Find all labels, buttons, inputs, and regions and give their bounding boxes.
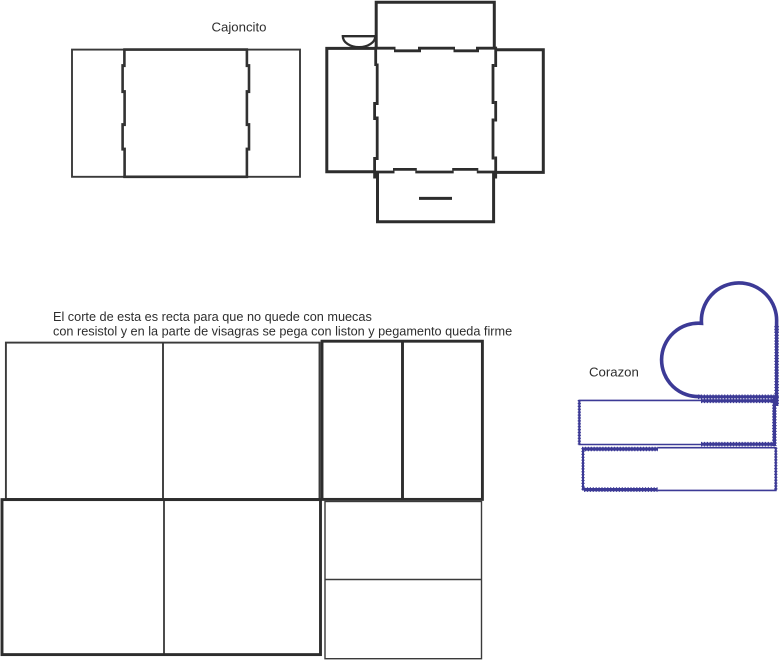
svg-text:con resistol y en la parte de: con resistol y en la parte de visagras s…: [53, 325, 512, 339]
svg-text:Corazon: Corazon: [589, 365, 639, 380]
svg-text:Cajoncito: Cajoncito: [212, 20, 267, 35]
svg-text:El corte de esta es recta para: El corte de esta es recta para que no qu…: [53, 310, 372, 324]
